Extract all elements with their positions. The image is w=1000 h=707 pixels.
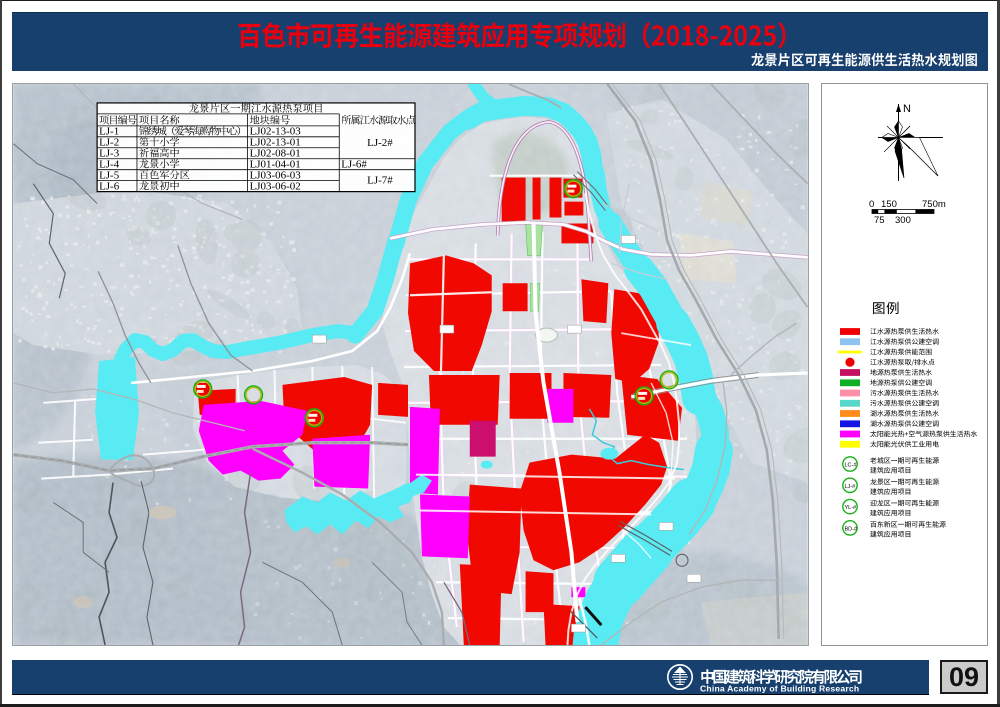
svg-text:LJ03-06-02: LJ03-06-02 [250, 180, 301, 192]
svg-text:300: 300 [895, 215, 911, 226]
svg-text:BD-#: BD-# [845, 526, 858, 532]
svg-text:LJ-2#: LJ-2# [367, 137, 393, 149]
svg-text:150: 150 [881, 199, 897, 210]
svg-text:LC-#: LC-# [845, 463, 858, 469]
svg-text:LJ-6#: LJ-6# [341, 159, 367, 171]
svg-text:LJ-#: LJ-# [845, 484, 857, 490]
svg-text:750m: 750m [922, 199, 946, 210]
svg-text:YL-#: YL-# [845, 505, 858, 511]
svg-text:0: 0 [869, 199, 874, 210]
svg-text:China Academy of Building Rese: China Academy of Building Research [700, 684, 859, 694]
svg-text:LJ-6: LJ-6 [99, 180, 120, 192]
svg-text:LJ-7#: LJ-7# [367, 175, 393, 187]
svg-text:75: 75 [874, 215, 885, 226]
svg-text:N: N [903, 103, 911, 115]
